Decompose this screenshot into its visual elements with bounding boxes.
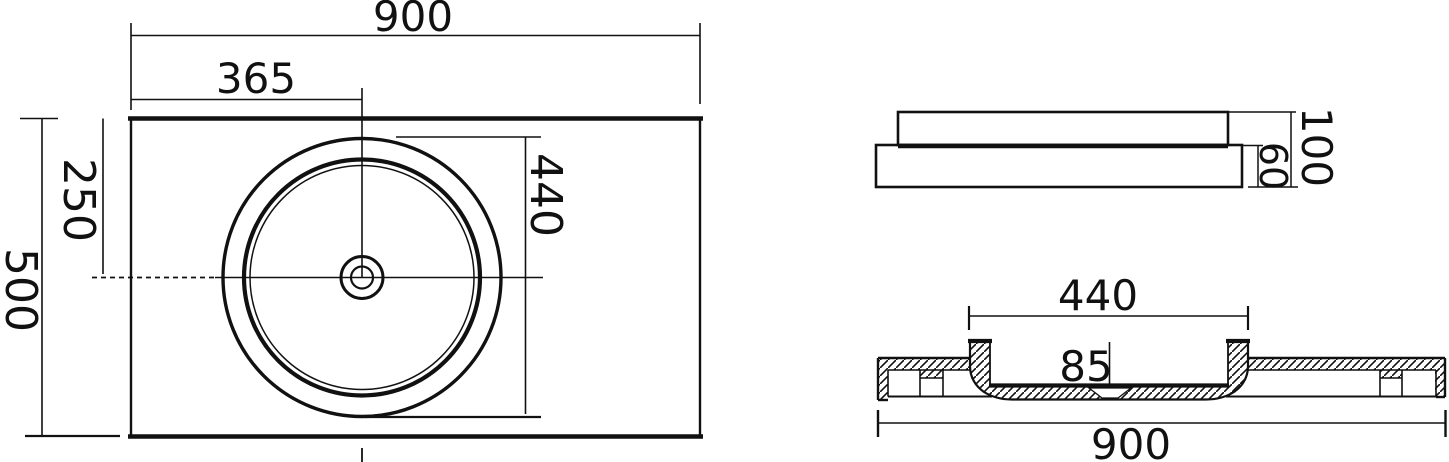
dim-section-total-width: 900 — [878, 410, 1446, 462]
dim-label-side-total-height: 100 — [1292, 107, 1341, 187]
dim-label-plan-total-depth: 500 — [0, 248, 46, 332]
dim-label-plan-total-width: 900 — [373, 0, 453, 41]
technical-drawing: 900 365 250 500 440 — [0, 0, 1449, 462]
dim-side-total-height: 100 — [1291, 107, 1341, 187]
plan-view: 900 365 250 500 440 — [0, 0, 703, 462]
dim-plan-center-offset-x: 365 — [131, 54, 362, 103]
dim-side-base-height: 60 — [1251, 142, 1295, 190]
dim-plan-center-offset-y: 250 — [53, 119, 104, 275]
dim-label-section-bowl-width: 440 — [1058, 271, 1138, 320]
dim-label-side-base-height: 60 — [1251, 142, 1295, 190]
drawing-canvas: 900 365 250 500 440 — [0, 0, 1449, 462]
dim-section-bowl-depth: 85 — [1059, 342, 1112, 391]
dim-label-plan-center-offset-y: 250 — [53, 158, 104, 242]
dim-section-bowl-width: 440 — [969, 271, 1248, 330]
side-base-slab — [876, 145, 1242, 187]
dim-label-section-bowl-depth: 85 — [1059, 342, 1112, 391]
dim-label-plan-center-offset-x: 365 — [216, 54, 296, 103]
side-top-slab — [898, 112, 1228, 145]
side-elevation-view: 60 100 — [876, 107, 1341, 190]
cross-section-view: 440 85 900 — [878, 271, 1446, 462]
dim-label-section-total-width: 900 — [1091, 420, 1171, 462]
dim-label-plan-bowl-diameter: 440 — [520, 153, 571, 237]
